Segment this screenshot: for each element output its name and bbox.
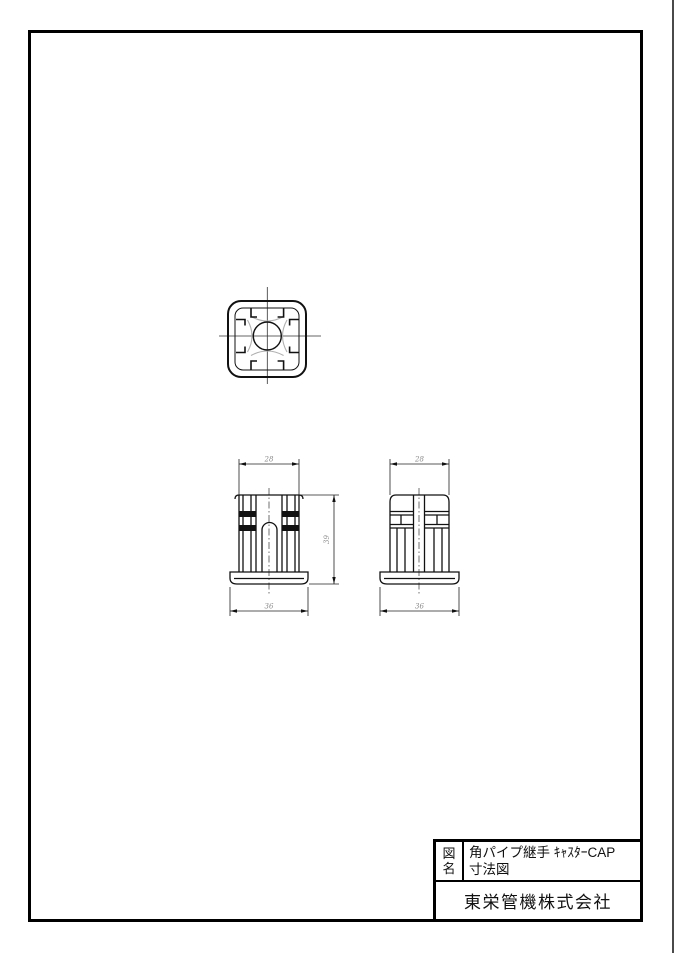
side-view-dim-lines: [380, 459, 459, 616]
side-dim-width-top: 28: [414, 456, 424, 464]
front-dim-height: 39: [323, 535, 331, 544]
side-dim-width-bottom: 36: [415, 603, 424, 611]
front-dim-width-top: 28: [264, 456, 274, 464]
drawing-title-line2: 寸法図: [469, 861, 635, 878]
drawing-title: 角パイプ継手 ｷｬｽﾀｰCAP 寸法図: [464, 842, 640, 880]
top-view: [215, 283, 325, 388]
company-name: 東栄管機株式会社: [436, 882, 640, 920]
title-block-label: 図 名: [436, 842, 464, 880]
side-view: 28 36: [375, 448, 470, 626]
side-view-dim-arrows: [380, 462, 459, 612]
side-view-body: [390, 495, 449, 572]
front-view: 28 36 39: [225, 448, 350, 626]
front-view-dim-arrows: [230, 462, 336, 612]
title-block-name-row: 図 名 角パイプ継手 ｷｬｽﾀｰCAP 寸法図: [436, 842, 640, 882]
page-edge-scan-line: [672, 0, 674, 953]
side-view-flange: [380, 572, 459, 584]
title-block-label-char1: 図: [442, 846, 455, 861]
front-dim-width-bottom: 36: [265, 603, 274, 611]
title-block: 図 名 角パイプ継手 ｷｬｽﾀｰCAP 寸法図 東栄管機株式会社: [433, 839, 643, 922]
drawing-sheet: 28 36 39: [0, 0, 675, 953]
drawing-title-line1: 角パイプ継手 ｷｬｽﾀｰCAP: [469, 844, 635, 861]
title-block-label-char2: 名: [442, 861, 455, 876]
